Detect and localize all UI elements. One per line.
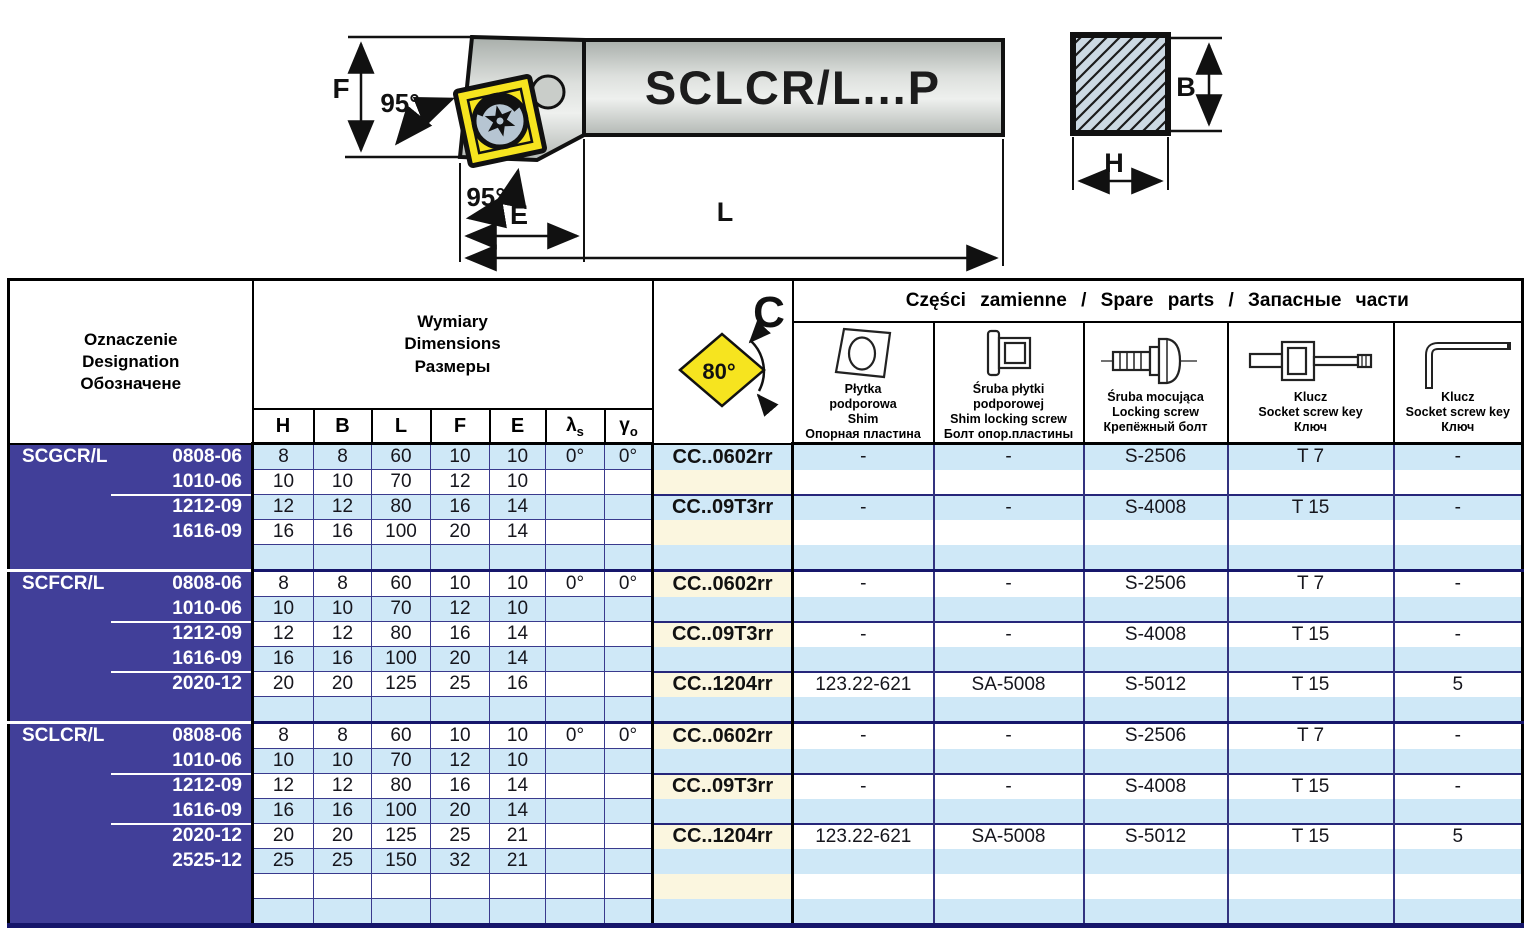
spare-part-cell [934,597,1084,622]
dimension-cell: 12 [431,749,490,774]
dimension-cell [605,697,653,723]
table-row: 1616-0916161002014 [9,799,1523,824]
shim-screw-caption: Śruba płytki podporowej Shim locking scr… [935,382,1083,442]
dimension-cell: 12 [431,597,490,622]
spare-part-cell [1084,597,1228,622]
spare-part-cell: 123.22-621 [793,824,934,849]
spare-part-cell [1394,849,1523,874]
spare-part-cell [1394,520,1523,545]
dimension-cell: 60 [372,444,431,470]
dimension-cell: 20 [431,799,490,824]
spare-part-cell [1228,647,1394,672]
size-label: 1010-06 [172,470,251,494]
series-label: SCFCR/L [10,572,104,596]
spare-part-cell: T 15 [1228,622,1394,647]
dimension-cell: 10 [431,571,490,597]
col-header-f: F [431,409,490,444]
insert-code-cell [653,849,793,874]
dimension-cell [546,697,605,723]
technical-drawing: SCLCR/L...P F 95° 95° E L [0,0,1528,276]
table-row [9,545,1523,571]
spare-part-cell [1394,597,1523,622]
spare-part-cell [1394,697,1523,723]
designation-cell [9,899,253,926]
dimension-cell: 16 [431,774,490,799]
spare-part-cell [1394,545,1523,571]
size-label: 1212-09 [172,495,251,519]
table-row: 2020-1220201252521CC..1204rr123.22-621SA… [9,824,1523,849]
dimension-cell: 20 [431,647,490,672]
dimension-cell [546,520,605,545]
insert-code-cell [653,799,793,824]
dimension-cell: 21 [490,849,546,874]
spare-part-cell: - [793,571,934,597]
spare-part-cell: - [793,622,934,647]
insert-code-cell [653,749,793,774]
catalog-page: { "diagram": { "holder_label": "SCLCR/L.… [0,0,1528,900]
dimension-cell: 14 [490,647,546,672]
dimension-cell [314,874,372,899]
dimension-cell [605,597,653,622]
designation-cell: 1010-06 [9,749,253,774]
dimension-cell: 8 [314,571,372,597]
dimension-cell [372,899,431,926]
designation-cell [9,545,253,571]
size-label: 2020-12 [172,824,251,848]
angle-95-top: 95° [380,88,452,143]
spare-part-cell [934,749,1084,774]
spare-part-cell: - [934,622,1084,647]
spare-part-cell: S-2506 [1084,723,1228,749]
dimension-cell: 8 [253,444,314,470]
insert-code-cell [653,597,793,622]
spare-part-cell: S-5012 [1084,672,1228,697]
spare-part-cell [1084,874,1228,899]
dimension-cell: 0° [546,571,605,597]
designation-cell [9,874,253,899]
shim-caption: Płytka podporowa Shim Опорная пластина [794,382,933,442]
insert-code-cell: CC..09T3rr [653,774,793,799]
spare-part-cell [1084,899,1228,926]
size-label: 1010-06 [172,749,251,773]
dimension-cell: 0° [605,723,653,749]
table-row: 1010-061010701210 [9,597,1523,622]
dimension-cell: 100 [372,647,431,672]
dimension-cell [490,697,546,723]
dimension-cell: 20 [253,672,314,697]
spare-part-cell [934,899,1084,926]
table-row: SCGCR/L0808-06886010100°0°CC..0602rr--S-… [9,444,1523,470]
dimension-cell: 16 [253,799,314,824]
dimension-cell: 70 [372,749,431,774]
dim-e-label: E [510,200,528,230]
dimension-cell: 10 [490,470,546,495]
dimension-cell: 20 [314,672,372,697]
insert-angle-label: 80° [702,359,735,384]
dimension-cell: 0° [605,571,653,597]
dimension-cell: 60 [372,723,431,749]
dimension-cell: 16 [314,520,372,545]
spare-part-cell: SA-5008 [934,824,1084,849]
dimension-b-arrow: B [1168,38,1222,131]
dimension-cell [372,545,431,571]
designation-cell: 1616-09 [9,520,253,545]
designation-cell: SCFCR/L0808-06 [9,571,253,597]
spare-part-cell: T 15 [1228,774,1394,799]
spare-part-cell [1394,874,1523,899]
table-row: 2020-1220201252516CC..1204rr123.22-621SA… [9,672,1523,697]
dimension-cell: 12 [431,470,490,495]
spare-part-cell [1228,899,1394,926]
spare-part-cell [1394,749,1523,774]
spare-part-cell: S-4008 [1084,622,1228,647]
dimension-cell [605,495,653,520]
dimension-cell: 10 [490,723,546,749]
spare-part-cell: - [793,495,934,520]
insert-icon [455,76,545,166]
spare-part-cell: 123.22-621 [793,672,934,697]
table-row: 1010-061010701210 [9,749,1523,774]
spare-part-cell [1228,697,1394,723]
dimension-cell [431,874,490,899]
dimension-cell: 10 [314,470,372,495]
dimension-cell [546,749,605,774]
spare-part-cell: - [1394,444,1523,470]
designation-cell: 1212-09 [9,774,253,799]
dimension-cell [431,697,490,723]
dimension-cell [546,899,605,926]
designation-cell: 1010-06 [9,597,253,622]
dimension-cell [546,874,605,899]
size-label: 0808-06 [172,572,251,596]
dimension-cell: 25 [431,672,490,697]
spare-part-cell: - [1394,723,1523,749]
dimension-cell: 10 [314,597,372,622]
dimension-cell: 16 [431,622,490,647]
table-row: 1212-091212801614CC..09T3rr--S-4008T 15- [9,495,1523,520]
spare-part-cell [1228,749,1394,774]
dimension-cell: 8 [314,723,372,749]
dimension-cell [546,622,605,647]
locking-screw-caption: Śruba mocująca Locking screw Крепёжный б… [1085,390,1227,435]
spare-part-cell [1394,799,1523,824]
dimension-cell [546,470,605,495]
insert-code-cell [653,697,793,723]
spare-part-cell [793,899,934,926]
dimension-cell: 14 [490,495,546,520]
dimension-cell: 16 [253,520,314,545]
dimension-cell [546,849,605,874]
designation-cell: 1212-09 [9,622,253,647]
spare-part-cell: - [1394,622,1523,647]
dimension-cell [605,799,653,824]
designation-cell: 1616-09 [9,799,253,824]
dimension-cell: 14 [490,520,546,545]
dimension-cell [605,899,653,926]
dimension-cell: 20 [253,824,314,849]
dim-b-label: B [1176,72,1196,102]
col-header-h: H [253,409,314,444]
insert-code-cell [653,520,793,545]
col-header-l: L [372,409,431,444]
socket-key-column-header: Klucz Socket screw key Ключ [1228,322,1394,444]
holder-side-view: SCLCR/L...P [455,37,1003,166]
dimension-cell: 10 [253,597,314,622]
spare-part-cell [793,849,934,874]
dimension-cell: 32 [431,849,490,874]
size-label: 2020-12 [172,672,251,696]
dimension-cell [546,647,605,672]
dimension-cell [314,697,372,723]
dimension-cell [546,799,605,824]
dimension-cell: 12 [253,774,314,799]
spare-part-cell: T 15 [1228,824,1394,849]
spare-part-cell: - [1394,774,1523,799]
spare-part-cell: 5 [1394,672,1523,697]
spare-part-cell [934,697,1084,723]
designation-cell: 2020-12 [9,672,253,697]
dimension-cell [605,849,653,874]
spare-part-cell [934,849,1084,874]
designation-cell: SCLCR/L0808-06 [9,723,253,749]
dimension-cell: 100 [372,799,431,824]
dimension-cell [546,495,605,520]
insert-column-header: C 80° [653,280,793,444]
designation-cell: 1616-09 [9,647,253,672]
spare-part-cell [1084,520,1228,545]
dimension-cell [605,749,653,774]
dimension-cell: 21 [490,824,546,849]
spare-part-cell [793,597,934,622]
dimension-h-arrow: H [1073,137,1168,190]
dimension-cell: 20 [314,824,372,849]
dimension-cell [253,874,314,899]
col-header-lambda: λs [546,409,605,444]
dimension-cell: 80 [372,774,431,799]
dimension-cell [605,874,653,899]
series-label: SCLCR/L [10,724,104,748]
dimension-cell [605,622,653,647]
insert-code-cell [653,647,793,672]
designation-cell: 2525-12 [9,849,253,874]
spare-part-cell [793,697,934,723]
dimension-cell [605,545,653,571]
insert-code-cell [653,470,793,495]
table-body: SCGCR/L0808-06886010100°0°CC..0602rr--S-… [9,444,1523,926]
dimension-cell [546,597,605,622]
dimension-cell: 16 [253,647,314,672]
dimension-cell [253,697,314,723]
dimension-cell: 10 [490,571,546,597]
spare-part-cell [1394,899,1523,926]
dimension-cell: 10 [253,470,314,495]
size-label: 1010-06 [172,597,251,621]
dimension-cell [253,545,314,571]
dimension-cell [490,545,546,571]
dimension-cell: 80 [372,622,431,647]
dimension-cell [605,647,653,672]
table-row: 1616-0916161002014 [9,520,1523,545]
spare-part-cell: - [934,571,1084,597]
spare-part-cell: T 7 [1228,723,1394,749]
spare-part-cell [934,545,1084,571]
dimension-cell [314,545,372,571]
dimension-cell: 12 [314,774,372,799]
socket-key-caption: Klucz Socket screw key Ключ [1229,390,1393,435]
size-label: 1616-09 [172,520,251,544]
dimension-cell [605,520,653,545]
spare-part-cell: SA-5008 [934,672,1084,697]
dimension-cell [605,470,653,495]
dimension-cell: 8 [253,723,314,749]
spare-part-cell: - [934,774,1084,799]
spare-part-cell [793,520,934,545]
dimension-cell: 0° [605,444,653,470]
col-header-b: B [314,409,372,444]
designation-cell: 1212-09 [9,495,253,520]
spare-part-cell: - [934,723,1084,749]
dimension-cell: 8 [253,571,314,597]
dimension-cell [490,874,546,899]
dimension-cell: 14 [490,622,546,647]
insert-code-cell [653,874,793,899]
insert-code-cell: CC..1204rr [653,672,793,697]
spare-part-cell [793,749,934,774]
size-label: 1616-09 [172,799,251,823]
table-row [9,874,1523,899]
spare-part-cell: S-4008 [1084,495,1228,520]
spare-part-cell: - [793,774,934,799]
angle-95-top-label: 95° [380,88,419,118]
table-row: 1616-0916161002014 [9,647,1523,672]
spare-part-cell [793,874,934,899]
holder-designation-label: SCLCR/L...P [645,61,941,114]
dimension-cell [546,545,605,571]
spare-parts-header: Części zamienne / Spare parts / Запасные… [793,280,1523,323]
angle-95-bottom-label: 95° [466,182,505,212]
series-label: SCGCR/L [10,445,108,469]
dimension-cell: 125 [372,672,431,697]
size-label: 1212-09 [172,622,251,646]
hex-key-column-header: Klucz Socket screw key Ключ [1394,322,1523,444]
spare-part-cell [934,874,1084,899]
dimension-cell: 10 [490,749,546,774]
dim-l-label: L [717,197,734,227]
dimension-cell: 100 [372,520,431,545]
designation-cell: 1010-06 [9,470,253,495]
spare-part-cell: S-2506 [1084,444,1228,470]
dimension-cell: 25 [314,849,372,874]
spare-part-cell: - [934,444,1084,470]
shim-locking-screw-icon [946,325,1072,381]
dimension-cell: 70 [372,597,431,622]
spare-part-cell [1084,849,1228,874]
size-label: 1616-09 [172,647,251,671]
dimension-cell: 70 [372,470,431,495]
table-row: 1212-091212801614CC..09T3rr--S-4008T 15- [9,774,1523,799]
hex-key-icon [1395,333,1521,389]
spare-part-cell: S-4008 [1084,774,1228,799]
dim-h-label: H [1104,148,1124,178]
spare-part-cell [1084,470,1228,495]
dimension-cell: 10 [431,444,490,470]
dimension-cell [490,899,546,926]
dimension-cell: 10 [253,749,314,774]
size-label: 0808-06 [172,445,251,469]
spare-part-cell: S-2506 [1084,571,1228,597]
table-row: 2525-1225251503221 [9,849,1523,874]
dimension-cell: 60 [372,571,431,597]
spare-part-cell [1228,849,1394,874]
insert-code-cell [653,899,793,926]
table-row: 1212-091212801614CC..09T3rr--S-4008T 15- [9,622,1523,647]
insert-code-cell: CC..09T3rr [653,495,793,520]
spare-part-cell [934,647,1084,672]
shim-icon [800,325,926,381]
locking-screw-icon [1093,333,1219,389]
dimension-cell: 12 [253,622,314,647]
dimension-cell: 12 [314,495,372,520]
spare-part-cell: T 15 [1228,672,1394,697]
spare-part-cell: T 15 [1228,495,1394,520]
spare-part-cell: T 7 [1228,444,1394,470]
dimension-cell: 14 [490,799,546,824]
spare-part-cell: - [934,495,1084,520]
dimension-cell [546,774,605,799]
spare-part-cell [1228,874,1394,899]
dim-f-label: F [332,73,349,104]
dimension-cell: 16 [431,495,490,520]
dimension-cell [605,774,653,799]
dimension-cell: 16 [314,647,372,672]
spare-part-cell [1394,647,1523,672]
size-label: 2525-12 [172,849,251,873]
dimension-cell: 0° [546,444,605,470]
spare-part-cell [1394,470,1523,495]
designation-cell: 2020-12 [9,824,253,849]
insert-code-cell: CC..0602rr [653,723,793,749]
insert-code-cell [653,545,793,571]
spare-part-cell [793,799,934,824]
shank-cross-section: B H [1073,35,1222,190]
dimension-cell [605,672,653,697]
table-row: 1010-061010701210 [9,470,1523,495]
insert-code-cell: CC..0602rr [653,571,793,597]
table-row [9,697,1523,723]
col-header-gamma: γo [605,409,653,444]
dimension-cell: 10 [490,597,546,622]
spare-part-cell: - [793,723,934,749]
spare-part-cell: 5 [1394,824,1523,849]
spare-part-cell: S-5012 [1084,824,1228,849]
dimension-cell: 20 [431,520,490,545]
col-header-e: E [490,409,546,444]
spare-part-cell [1228,470,1394,495]
dimension-cell [253,899,314,926]
spare-part-cell [1084,647,1228,672]
dimension-l-arrow: L [467,139,1003,266]
insert-code-cell: CC..09T3rr [653,622,793,647]
locking-screw-column-header: Śruba mocująca Locking screw Крепёжный б… [1084,322,1228,444]
socket-screw-key-icon [1248,333,1374,389]
table-row [9,899,1523,926]
c-letter: C [753,288,785,337]
dimension-cell [546,672,605,697]
dimension-cell [546,824,605,849]
dimension-cell: 125 [372,824,431,849]
spare-part-cell [934,470,1084,495]
dimension-cell: 8 [314,444,372,470]
